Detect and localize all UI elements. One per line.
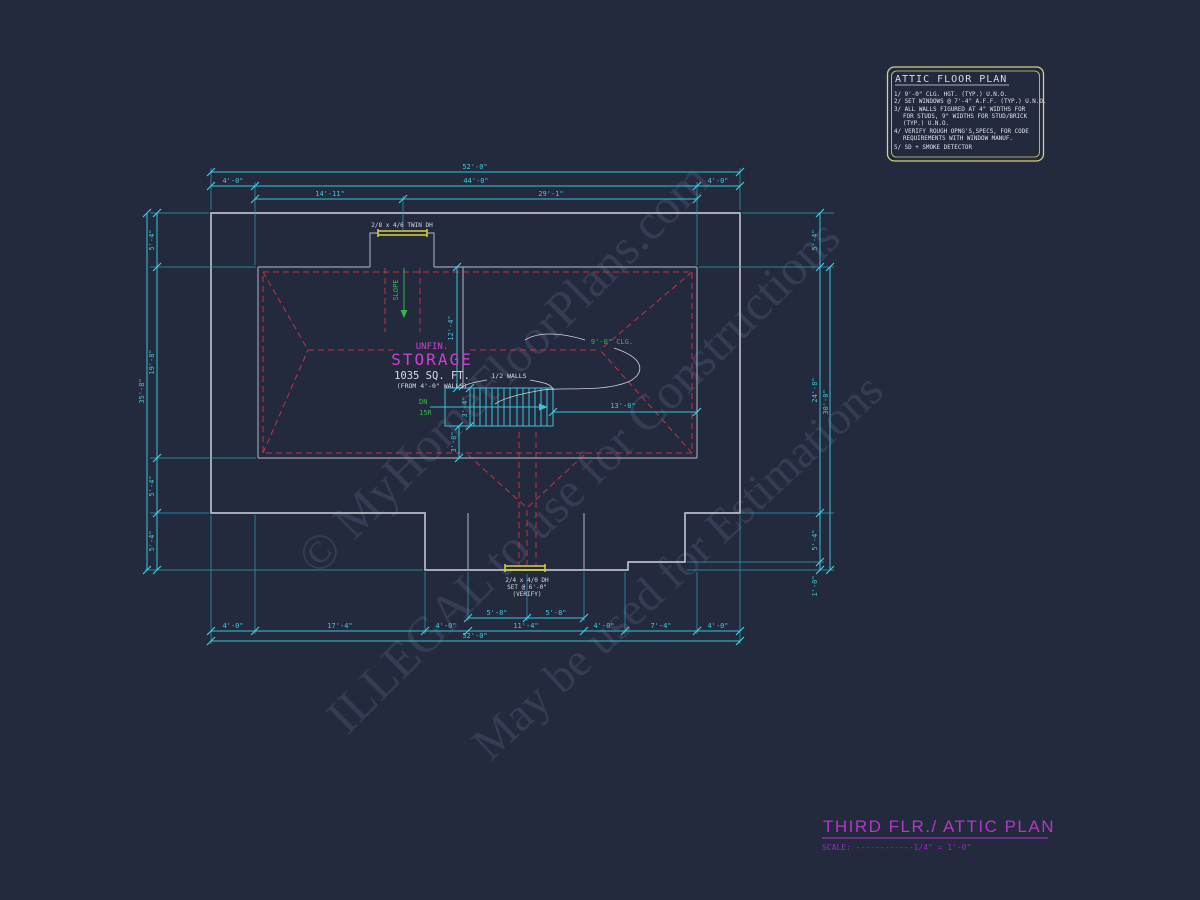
room-storage-label: STORAGE xyxy=(391,350,472,369)
note-line-5: (TYP.) U.N.O. xyxy=(903,121,949,127)
dim-right-5-4-a: 5'-4" xyxy=(811,229,819,250)
dim-int-13-0: 13'-0" xyxy=(610,402,635,410)
dim-right-1-0: 1'-0" xyxy=(811,575,819,596)
dim-top-overall: 52'-0" xyxy=(462,163,487,171)
sheet-scale: SCALE: ------------1/4" = 1'-0" xyxy=(822,843,971,852)
dim-int-3-4: 3'-4" xyxy=(461,396,469,417)
dim-bottom-4-d: 4'-0" xyxy=(707,622,728,630)
dim-bottom-5-8-b: 5'-8" xyxy=(545,609,566,617)
sheet-title: THIRD FLR./ ATTIC PLAN xyxy=(823,817,1055,836)
ceiling-height-label: 9'-0" CLG. xyxy=(591,338,633,346)
dim-bottom-4-c: 4'-0" xyxy=(593,622,614,630)
stair-risers-label: 15R xyxy=(419,409,432,417)
top-twin-window xyxy=(378,229,427,237)
dim-right-30-0: 30'-0" xyxy=(822,389,830,414)
dim-int-12-4: 12'-4" xyxy=(447,315,455,340)
dim-bottom-7-4: 7'-4" xyxy=(650,622,671,630)
dim-top-left-4: 4'-0" xyxy=(222,177,243,185)
dim-bottom-4-b: 4'-0" xyxy=(435,622,456,630)
dim-right-5-4-b: 5'-4" xyxy=(811,529,819,550)
stair-down-label: DN xyxy=(419,398,427,406)
top-dormer-walls xyxy=(370,233,434,267)
note-line-1: 1/ 9'-0" CLG. HGT. (TYP.) U.N.O. xyxy=(894,92,1008,98)
dim-left-5-4-b: 5'-4" xyxy=(148,475,156,496)
attic-floor-plan-drawing: © MyHomeFloorPlans.com ILLEGAL to use fo… xyxy=(0,0,1200,900)
dim-bottom-5-8-a: 5'-8" xyxy=(486,609,507,617)
note-line-3: 3/ ALL WALLS FIGURED AT 4" WIDTHS FOR xyxy=(894,107,1026,113)
cad-canvas: © MyHomeFloorPlans.com ILLEGAL to use fo… xyxy=(0,0,1200,900)
dim-left-overall: 35'-8" xyxy=(138,378,146,403)
dim-top-29-1: 29'-1" xyxy=(538,190,563,198)
notes-box-title: ATTIC FLOOR PLAN xyxy=(895,74,1007,85)
dim-right-24-8: 24'-8" xyxy=(811,377,819,402)
bottom-window-label-1: 2/4 x 4/0 DH xyxy=(505,577,549,584)
dim-left-19-8: 19'-8" xyxy=(148,349,156,374)
room-area-note: (FROM 4'-0" WALLS) xyxy=(397,382,467,390)
room-area-label: 1035 SQ. FT. xyxy=(394,370,470,382)
dim-top-right-4: 4'-0" xyxy=(707,177,728,185)
dim-bottom-11-4: 11'-4" xyxy=(513,622,538,630)
dormer-top-slope-lines xyxy=(385,268,420,332)
note-line-2: 2/ SET WINDOWS @ 7'-4" A.F.F. (TYP.) U.N… xyxy=(894,99,1047,105)
dim-top-44: 44'-0" xyxy=(463,177,488,185)
room-label: UNFIN. STORAGE 1035 SQ. FT. (FROM 4'-0" … xyxy=(391,342,472,390)
dim-left-5-4-c: 5'-4" xyxy=(148,530,156,551)
watermark-layer: © MyHomeFloorPlans.com ILLEGAL to use fo… xyxy=(286,151,893,770)
half-walls-label: 1/2 WALLS xyxy=(491,372,526,380)
twin-window-label: 2/8 x 4/6 TWIN DH xyxy=(371,222,433,229)
bottom-window-label-2: SET @ 6'-0" xyxy=(507,584,547,591)
note-line-8: 5/ SD + SMOKE DETECTOR xyxy=(894,145,972,151)
sheet-title-block: THIRD FLR./ ATTIC PLAN SCALE: ----------… xyxy=(822,817,1055,852)
slope-arrowhead xyxy=(401,310,408,318)
dim-int-3-8: 3'-8" xyxy=(450,431,458,452)
dim-left-5-4-a: 5'-4" xyxy=(148,229,156,250)
note-line-7: REQUIREMENTS WITH WINDOW MANUF. xyxy=(903,136,1013,142)
note-line-4: FOR STUDS, 9" WIDTHS FOR STUD/BRICK xyxy=(903,114,1028,120)
slope-label: SLOPE xyxy=(392,279,400,300)
dim-top-14-11: 14'-11" xyxy=(315,190,345,198)
dim-bottom-4-a: 4'-0" xyxy=(222,622,243,630)
notes-box: ATTIC FLOOR PLAN 1/ 9'-0" CLG. HGT. (TYP… xyxy=(888,67,1047,161)
dim-bottom-overall: 52'-0" xyxy=(462,632,487,640)
note-line-6: 4/ VERIFY ROUGH OPNG'S,SPECS, FOR CODE xyxy=(894,129,1029,135)
bottom-window-label-3: (VERIFY) xyxy=(513,591,542,598)
dim-bottom-17-4: 17'-4" xyxy=(327,622,352,630)
